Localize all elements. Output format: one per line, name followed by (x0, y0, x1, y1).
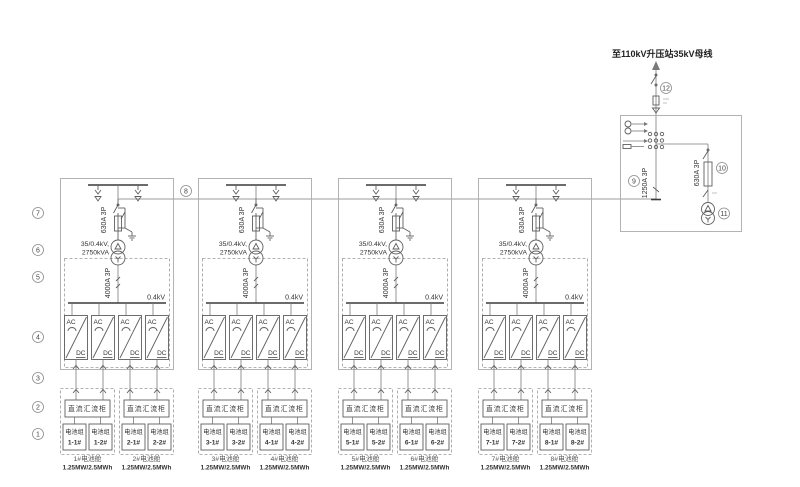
dc-label: DC (408, 350, 418, 357)
dc-label: DC (435, 350, 445, 357)
dc-label: DC (103, 350, 113, 357)
battery-group-label: 电池组 (262, 428, 281, 436)
lv-breaker: 4000A 3P (105, 265, 120, 303)
cabin-name-label: 6#电池舱 (411, 454, 439, 463)
hv-mini-bus (226, 185, 286, 201)
ref-8-label: 8 (184, 189, 188, 196)
collector-bay: 至110kV升压站35kV母线 12 (612, 48, 742, 232)
converter-2: AC DC (230, 303, 253, 400)
dc-label: DC (354, 350, 364, 357)
dc-combiner-label: 直流汇流柜 (127, 404, 166, 413)
transformer-ratio-label: 35/0.4kV, (81, 241, 109, 248)
transformer-ratio-label: 35/0.4kV, (219, 241, 247, 248)
station-transformer-icon (702, 203, 715, 225)
battery-group-label: 电池组 (542, 428, 561, 436)
lv-breaker: 4000A 3P (383, 265, 398, 303)
ref-circle-12: 12 (661, 83, 672, 94)
transformer-icon (249, 240, 263, 265)
dc-combiner-label: 直流汇流柜 (545, 404, 584, 413)
dc-label: DC (521, 350, 531, 357)
converter-3: AC DC (537, 303, 560, 400)
cabin-name-label: 7#电池舱 (492, 454, 520, 463)
converter-3: AC DC (119, 303, 142, 400)
hv-bus-destination-label: 至110kV升压站35kV母线 (612, 48, 713, 59)
ac-label: AC (345, 319, 354, 326)
converter-1: AC DC (65, 303, 88, 400)
battery-group-label: 电池组 (91, 428, 110, 436)
transformer-icon (389, 240, 403, 265)
dc-label: DC (548, 350, 558, 357)
ground-icon (543, 228, 554, 240)
ac-label: AC (259, 319, 268, 326)
dc-label: DC (157, 350, 167, 357)
ref-11-label: 11 (720, 211, 727, 218)
ref-9-label: 9 (632, 179, 636, 186)
ref-3-label: 3 (36, 376, 40, 383)
battery-group-number: 3-1# (206, 440, 220, 447)
battery-group-label: 电池组 (428, 428, 447, 436)
transformer-rating-label: 2750kVA (82, 250, 110, 257)
hv-switch-fuse: 630A 3P (239, 199, 274, 240)
surge-arrester-icon (135, 185, 141, 201)
pcs-battery-block-3: 630A 3P 35/0.4kV, 2750kVA 4000A 3P 0.4kV (338, 178, 452, 470)
surge-arrester-icon (373, 185, 379, 201)
ac-label: AC (232, 319, 241, 326)
cabin-rating-label: 1.25MW/2.5MWh (260, 465, 310, 471)
ac-label: AC (286, 319, 295, 326)
battery-cabin-1: 直流汇流柜 电池组 5-1# 电池组 5-2# 5#电池舱 1.25MW/2.5… (339, 389, 393, 471)
ref-4-label: 4 (36, 335, 40, 342)
ac-label: AC (121, 319, 130, 326)
battery-group-number: 6-2# (431, 440, 445, 447)
battery-cabin-2: 直流汇流柜 电池组 4-1# 电池组 4-2# 4#电池舱 1.25MW/2.5… (258, 389, 312, 471)
dc-label: DC (214, 350, 224, 357)
surge-arrester-icon (233, 185, 239, 201)
dc-label: DC (381, 350, 391, 357)
lv-breaker-label: 4000A 3P (105, 267, 112, 298)
hv-mini-bus (506, 185, 566, 201)
lv-bus-label: 0.4kV (425, 295, 443, 302)
ref-6-label: 6 (36, 248, 40, 255)
battery-cabin-1: 直流汇流柜 电池组 1-1# 电池组 1-2# 1#电池舱 1.25MW/2.5… (61, 389, 115, 471)
converter-2: AC DC (92, 303, 115, 400)
ac-label: AC (485, 319, 494, 326)
cabin-name-label: 2#电池舱 (133, 454, 161, 463)
battery-group-number: 5-1# (346, 440, 360, 447)
lv-breaker-label: 4000A 3P (243, 267, 250, 298)
hv-switch-fuse: 630A 3P (101, 199, 136, 240)
ref-7-label: 7 (36, 211, 40, 218)
battery-cabin-2: 直流汇流柜 电池组 6-1# 电池组 6-2# 6#电池舱 1.25MW/2.5… (398, 389, 452, 471)
up-arrow-icon (652, 61, 660, 70)
battery-group-number: 2-2# (153, 440, 167, 447)
battery-group-label: 电池组 (288, 428, 307, 436)
surge-arrester-icon (273, 185, 279, 201)
aux-branch: 630A 3P (656, 144, 717, 202)
dc-combiner-label: 直流汇流柜 (346, 404, 385, 413)
dc-label: DC (76, 350, 86, 357)
pt-metering-branch (623, 121, 648, 149)
cabin-name-label: 3#电池舱 (212, 454, 240, 463)
converter-4: AC DC (424, 303, 447, 400)
ac-label: AC (426, 319, 435, 326)
hv-switch-fuse: 630A 3P (519, 199, 554, 240)
dc-label: DC (241, 350, 251, 357)
cabin-rating-label: 1.25MW/2.5MWh (63, 465, 113, 471)
battery-group-label: 电池组 (124, 428, 143, 436)
hv-mini-bus (366, 185, 426, 201)
battery-group-number: 3-2# (232, 440, 246, 447)
dc-combiner-label: 直流汇流柜 (68, 404, 107, 413)
dc-combiner-label: 直流汇流柜 (405, 404, 444, 413)
ac-label: AC (566, 319, 575, 326)
converter-1: AC DC (343, 303, 366, 400)
transformer-icon (529, 240, 543, 265)
battery-group-number: 8-2# (571, 440, 585, 447)
surge-arrester-icon (553, 185, 559, 201)
ref-12-label: 12 (662, 86, 670, 93)
battery-group-label: 电池组 (65, 428, 84, 436)
cabin-rating-label: 1.25MW/2.5MWh (540, 465, 590, 471)
ref-circle-8: 8 (181, 186, 192, 197)
battery-group-label: 电池组 (150, 428, 169, 436)
ac-label: AC (205, 319, 214, 326)
battery-group-number: 5-2# (372, 440, 386, 447)
ref-5-label: 5 (36, 275, 40, 282)
ac-label: AC (372, 319, 381, 326)
cabin-name-label: 5#电池舱 (352, 454, 380, 463)
lv-bus-label: 0.4kV (147, 295, 165, 302)
ref-column: 7 6 5 4 3 2 1 (33, 208, 44, 440)
transformer-icon (111, 240, 125, 265)
ground-icon (263, 228, 274, 240)
ref-circle-9: 9 (629, 176, 640, 187)
converter-1: AC DC (483, 303, 506, 400)
battery-group-label: 电池组 (402, 428, 421, 436)
lv-breaker-label: 4000A 3P (383, 267, 390, 298)
converter-4: AC DC (284, 303, 307, 400)
ac-label: AC (148, 319, 157, 326)
battery-group-number: 7-2# (512, 440, 526, 447)
lv-breaker: 4000A 3P (243, 265, 258, 303)
converter-3: AC DC (257, 303, 280, 400)
ref-circle-11: 11 (719, 208, 730, 219)
ref-1-label: 1 (36, 432, 40, 439)
converter-1: AC DC (203, 303, 226, 400)
dc-label: DC (295, 350, 305, 357)
ref-circle-10: 10 (717, 163, 728, 174)
transformer-ratio-label: 35/0.4kV, (499, 241, 527, 248)
surge-arrester-icon (95, 185, 101, 201)
battery-group-label: 电池组 (483, 428, 502, 436)
pcs-battery-block-1: 630A 3P 35/0.4kV, 2750kVA 4000A 3P 0.4kV (60, 178, 174, 470)
battery-group-number: 8-1# (545, 440, 559, 447)
battery-group-number: 4-2# (291, 440, 305, 447)
cabin-name-label: 8#电池舱 (551, 454, 579, 463)
ac-label: AC (539, 319, 548, 326)
hv-switch-label: 630A 3P (239, 206, 246, 233)
cabin-name-label: 1#电池舱 (74, 454, 102, 463)
transformer-rating-label: 2750kVA (360, 250, 388, 257)
cabin-rating-label: 1.25MW/2.5MWh (341, 465, 391, 471)
battery-group-number: 7-1# (486, 440, 500, 447)
converter-2: AC DC (510, 303, 533, 400)
pcs-battery-block-4: 630A 3P 35/0.4kV, 2750kVA 4000A 3P 0.4kV (478, 178, 592, 470)
battery-group-label: 电池组 (369, 428, 388, 436)
ground-icon (125, 228, 136, 240)
hv-switch-label: 630A 3P (101, 206, 108, 233)
converter-4: AC DC (564, 303, 587, 400)
pcs-battery-block-2: 630A 3P 35/0.4kV, 2750kVA 4000A 3P 0.4kV (198, 178, 312, 470)
battery-group-label: 电池组 (509, 428, 528, 436)
converter-2: AC DC (370, 303, 393, 400)
ref-10-label: 10 (718, 166, 726, 173)
surge-arrester-icon (513, 185, 519, 201)
ac-label: AC (512, 319, 521, 326)
ac-label: AC (399, 319, 408, 326)
dc-combiner-label: 直流汇流柜 (265, 404, 304, 413)
battery-group-label: 电池组 (229, 428, 248, 436)
ac-label: AC (94, 319, 103, 326)
battery-group-label: 电池组 (568, 428, 587, 436)
main-breaker-label: 1250A 3P (642, 167, 649, 198)
hv-switch-fuse: 630A 3P (379, 199, 414, 240)
battery-group-number: 2-1# (127, 440, 141, 447)
lv-breaker-label: 4000A 3P (523, 267, 530, 298)
single-line-diagram: 8 7 6 5 4 3 2 1 至110kV升压站35kV母线 (0, 0, 800, 487)
hv-switch-label: 630A 3P (519, 206, 526, 233)
battery-cabin-1: 直流汇流柜 电池组 7-1# 电池组 7-2# 7#电池舱 1.25MW/2.5… (479, 389, 533, 471)
battery-group-number: 1-1# (68, 440, 82, 447)
dc-combiner-label: 直流汇流柜 (206, 404, 245, 413)
ac-label: AC (67, 319, 76, 326)
battery-group-label: 电池组 (343, 428, 362, 436)
battery-group-label: 电池组 (203, 428, 222, 436)
battery-cabin-1: 直流汇流柜 电池组 3-1# 电池组 3-2# 3#电池舱 1.25MW/2.5… (199, 389, 253, 471)
battery-group-number: 1-2# (94, 440, 108, 447)
battery-cabin-2: 直流汇流柜 电池组 2-1# 电池组 2-2# 2#电池舱 1.25MW/2.5… (120, 389, 174, 471)
main-breaker: 1250A 3P (642, 167, 661, 199)
cabin-rating-label: 1.25MW/2.5MWh (481, 465, 531, 471)
converter-4: AC DC (146, 303, 169, 400)
dc-label: DC (575, 350, 585, 357)
dc-label: DC (130, 350, 140, 357)
battery-group-number: 4-1# (265, 440, 279, 447)
ref-2-label: 2 (36, 405, 40, 412)
converter-3: AC DC (397, 303, 420, 400)
cable-terminal-symbols (653, 96, 670, 113)
aux-branch-label: 630A 3P (694, 159, 701, 186)
dc-label: DC (268, 350, 278, 357)
hv-mini-bus (88, 185, 148, 201)
transformer-rating-label: 2750kVA (500, 250, 528, 257)
battery-cabin-2: 直流汇流柜 电池组 8-1# 电池组 8-2# 8#电池舱 1.25MW/2.5… (538, 389, 592, 471)
dc-combiner-label: 直流汇流柜 (486, 404, 525, 413)
ground-icon (403, 228, 414, 240)
lv-breaker: 4000A 3P (523, 265, 538, 303)
cabin-name-label: 4#电池舱 (271, 454, 299, 463)
lv-bus-label: 0.4kV (285, 295, 303, 302)
cabin-rating-label: 1.25MW/2.5MWh (400, 465, 450, 471)
surge-arrester-icon (413, 185, 419, 201)
transformer-rating-label: 2750kVA (220, 250, 248, 257)
battery-group-number: 6-1# (405, 440, 419, 447)
dc-label: DC (494, 350, 504, 357)
cabin-rating-label: 1.25MW/2.5MWh (201, 465, 251, 471)
transformer-ratio-label: 35/0.4kV, (359, 241, 387, 248)
cabin-rating-label: 1.25MW/2.5MWh (122, 465, 172, 471)
hv-switch-label: 630A 3P (379, 206, 386, 233)
lv-bus-label: 0.4kV (565, 295, 583, 302)
